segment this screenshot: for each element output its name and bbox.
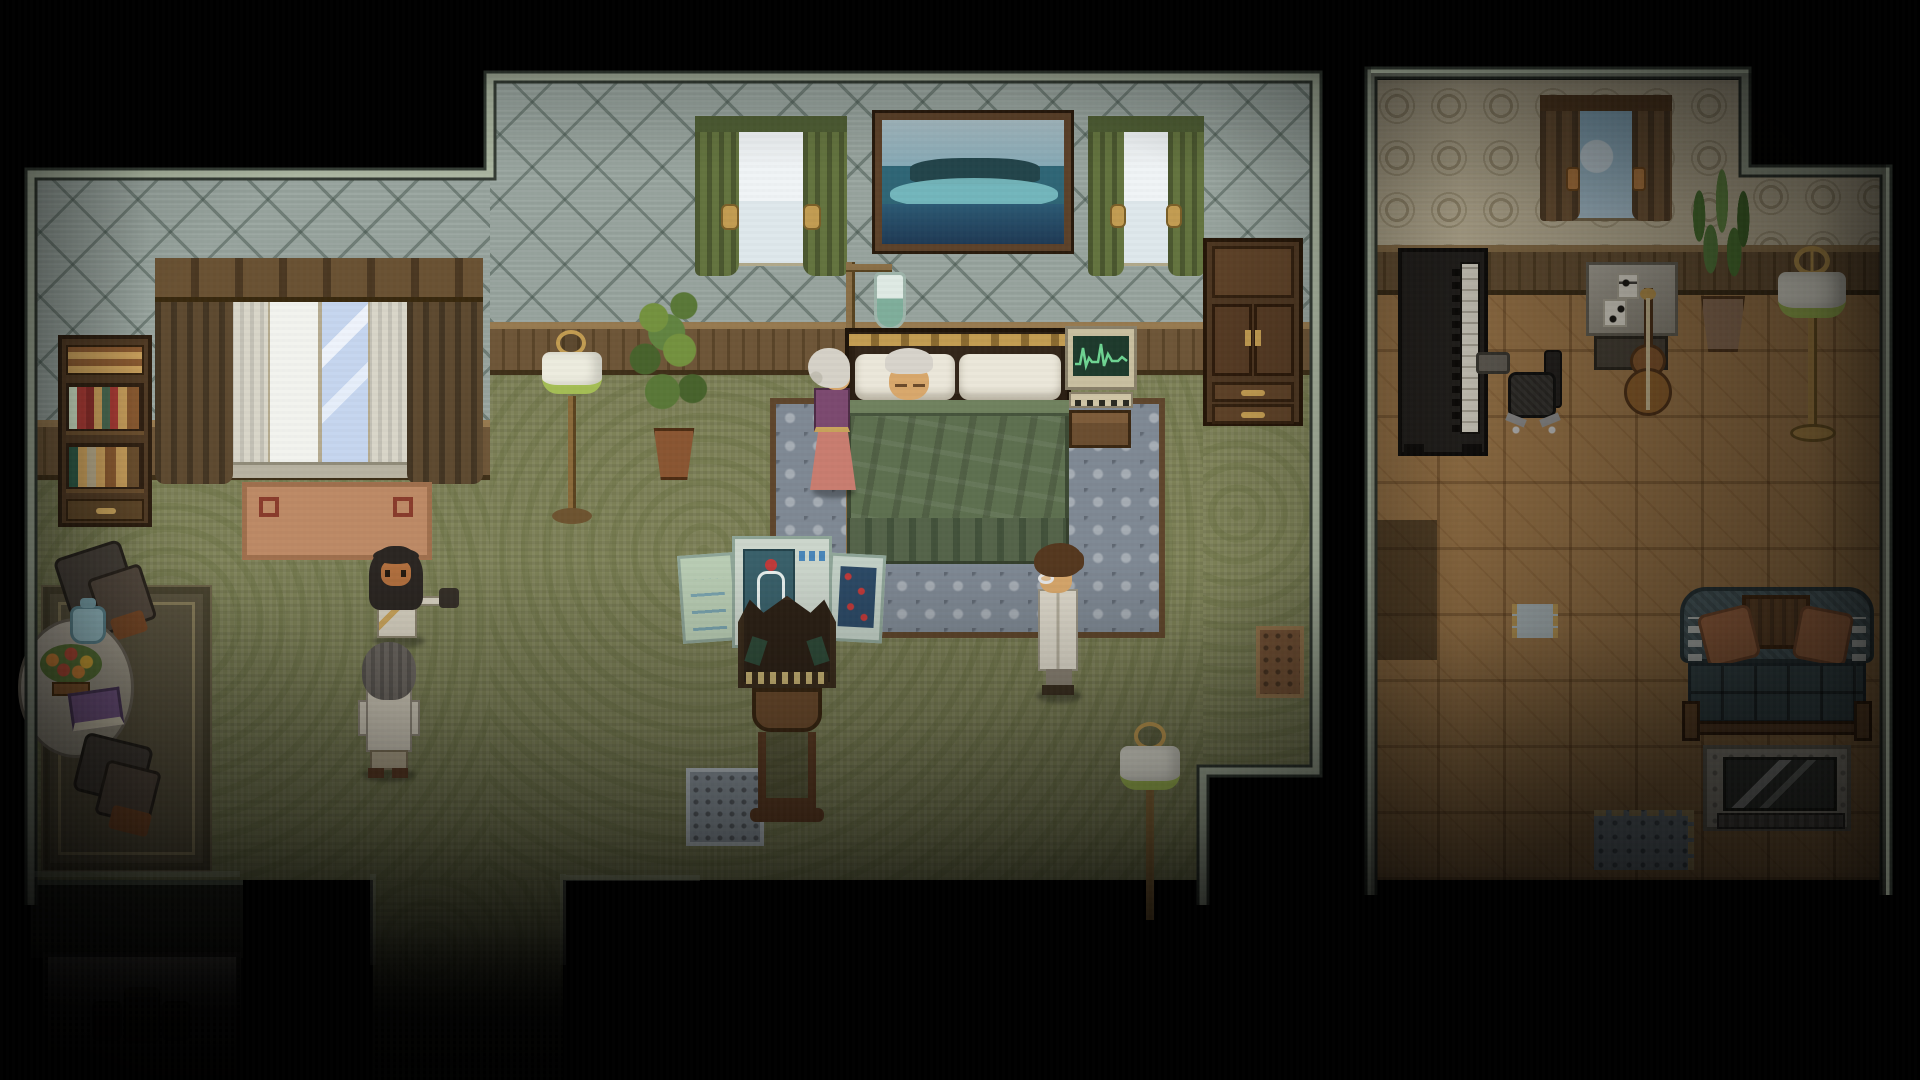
bedroom-outline — [31, 77, 1316, 905]
bedroom-outline-shadow — [31, 77, 1316, 905]
study-outline — [1371, 73, 1886, 895]
bedroom-bottom-stubs — [31, 874, 700, 965]
room-outlines — [0, 0, 1920, 1080]
study-outline-shadow — [1371, 73, 1886, 895]
game-viewport[interactable] — [0, 0, 1920, 1080]
